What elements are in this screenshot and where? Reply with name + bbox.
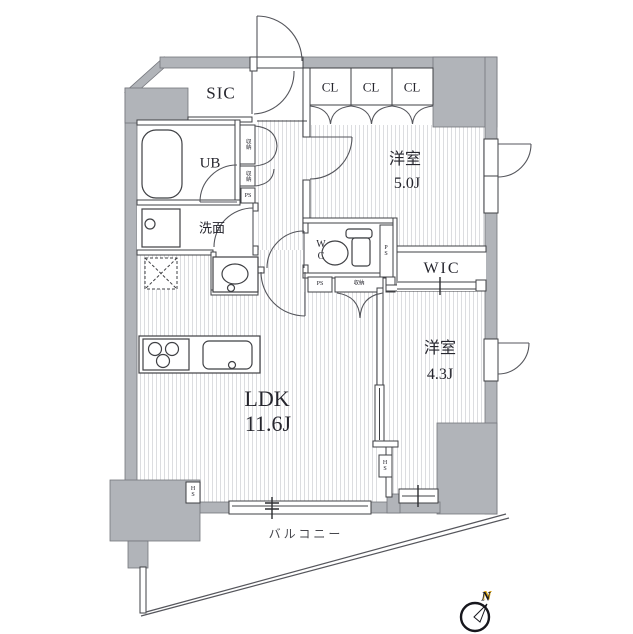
ub-top-wall: [137, 120, 240, 125]
storage-wc-bifold: [337, 293, 383, 318]
stove-burner-3: [157, 355, 170, 368]
wc-top-wall: [303, 218, 397, 223]
kitchen-sink: [203, 341, 252, 369]
closet2-label: CL: [363, 81, 380, 94]
left-wall: [125, 88, 137, 483]
linen-small-door: [255, 169, 274, 186]
hs-left-label: HS: [190, 486, 196, 498]
fridge-space: [145, 258, 177, 289]
bedroom1-window-swing: [498, 144, 531, 177]
chamfer-corner-wall: [125, 57, 164, 92]
washbasin-faucet: [228, 285, 235, 292]
floor-plan: SIC UB 洗面 W C CL CL CL 洋室 5.0J WIC 洋室 4.…: [0, 0, 633, 634]
closet1-bifold: [310, 106, 351, 124]
sic-right-nub: [250, 57, 257, 71]
stove-burner-1: [149, 343, 162, 356]
wic-opening-nub: [476, 280, 486, 291]
bedroom1-size-label: 5.0J: [394, 176, 420, 192]
bedroom2-jog-wall-h: [373, 441, 398, 447]
toilet-bowl: [322, 241, 348, 265]
ub-label: UB: [200, 157, 221, 172]
wic-top-wall: [397, 246, 486, 252]
top-wall-left: [160, 57, 259, 68]
toilet-tank: [352, 238, 370, 266]
closet3-bifold: [392, 106, 433, 124]
bottom-right-wall-block: [437, 423, 497, 514]
toilet-lid: [346, 229, 372, 238]
compass: [461, 603, 489, 631]
entry-door-opening: [257, 57, 303, 68]
ps-hall-label: PS: [317, 281, 324, 287]
storage-lower-label: 収納: [244, 171, 250, 182]
bedroom2-window-swing: [498, 343, 529, 374]
ldk-bedroom2-wall: [377, 288, 383, 385]
closet1-label: CL: [322, 81, 339, 94]
ps-corridor-label: PS: [245, 193, 252, 199]
wc-door-swing: [267, 231, 304, 268]
opening-ticks: [265, 277, 440, 519]
storage-wc-label: 収納: [353, 281, 364, 287]
stove-burner-2: [166, 343, 179, 356]
sic-label: SIC: [206, 85, 235, 102]
entry-door-swing: [257, 16, 302, 61]
ldk-size-label: 11.6J: [245, 413, 291, 435]
washbasin-bowl: [222, 264, 248, 284]
hs-right-label: HS: [382, 460, 388, 472]
genkan-east-wall-upper: [303, 68, 310, 137]
bedroom2-name-label: 洋室: [424, 341, 456, 357]
bathtub: [142, 130, 182, 198]
bedroom2-window: [484, 339, 498, 381]
wic-label: WIC: [423, 261, 460, 277]
sic-door-swing: [252, 71, 294, 114]
hall-ldk-door-swing: [261, 272, 305, 316]
sic-side-wall-block: [125, 88, 188, 123]
washer-faucet: [145, 219, 155, 229]
bedroom2-size-label: 4.3J: [427, 367, 453, 383]
wc-label-w: W: [316, 240, 325, 250]
storage-upper-label: 収納: [244, 139, 250, 150]
ldk-name-label: LDK: [244, 388, 289, 410]
closet3-label: CL: [404, 81, 421, 94]
bottom-left-step: [128, 541, 148, 568]
compass-north-label: N: [481, 590, 490, 603]
washroom-right-nub: [253, 203, 258, 211]
wc-label-c: C: [318, 252, 325, 262]
sink-faucet: [229, 362, 236, 369]
washroom-right-lower: [253, 246, 258, 255]
linen-bifold: [255, 126, 277, 166]
bedroom1-name-label: 洋室: [389, 152, 421, 168]
washroom-bottom-wall: [137, 250, 213, 255]
balcony-label: バルコニー: [269, 528, 344, 540]
bedroom1-door-swing: [310, 137, 352, 179]
compass-circle: [461, 603, 489, 631]
ldk-balcony-window: [229, 501, 371, 514]
ps-shaft-label: PS: [383, 245, 389, 257]
closet2-bifold: [351, 106, 392, 124]
balcony-left-edge: [140, 567, 146, 613]
genkan-east-wall-lower: [303, 180, 310, 223]
washroom-label: 洗面: [199, 222, 225, 235]
ub-right-wall: [235, 120, 240, 205]
